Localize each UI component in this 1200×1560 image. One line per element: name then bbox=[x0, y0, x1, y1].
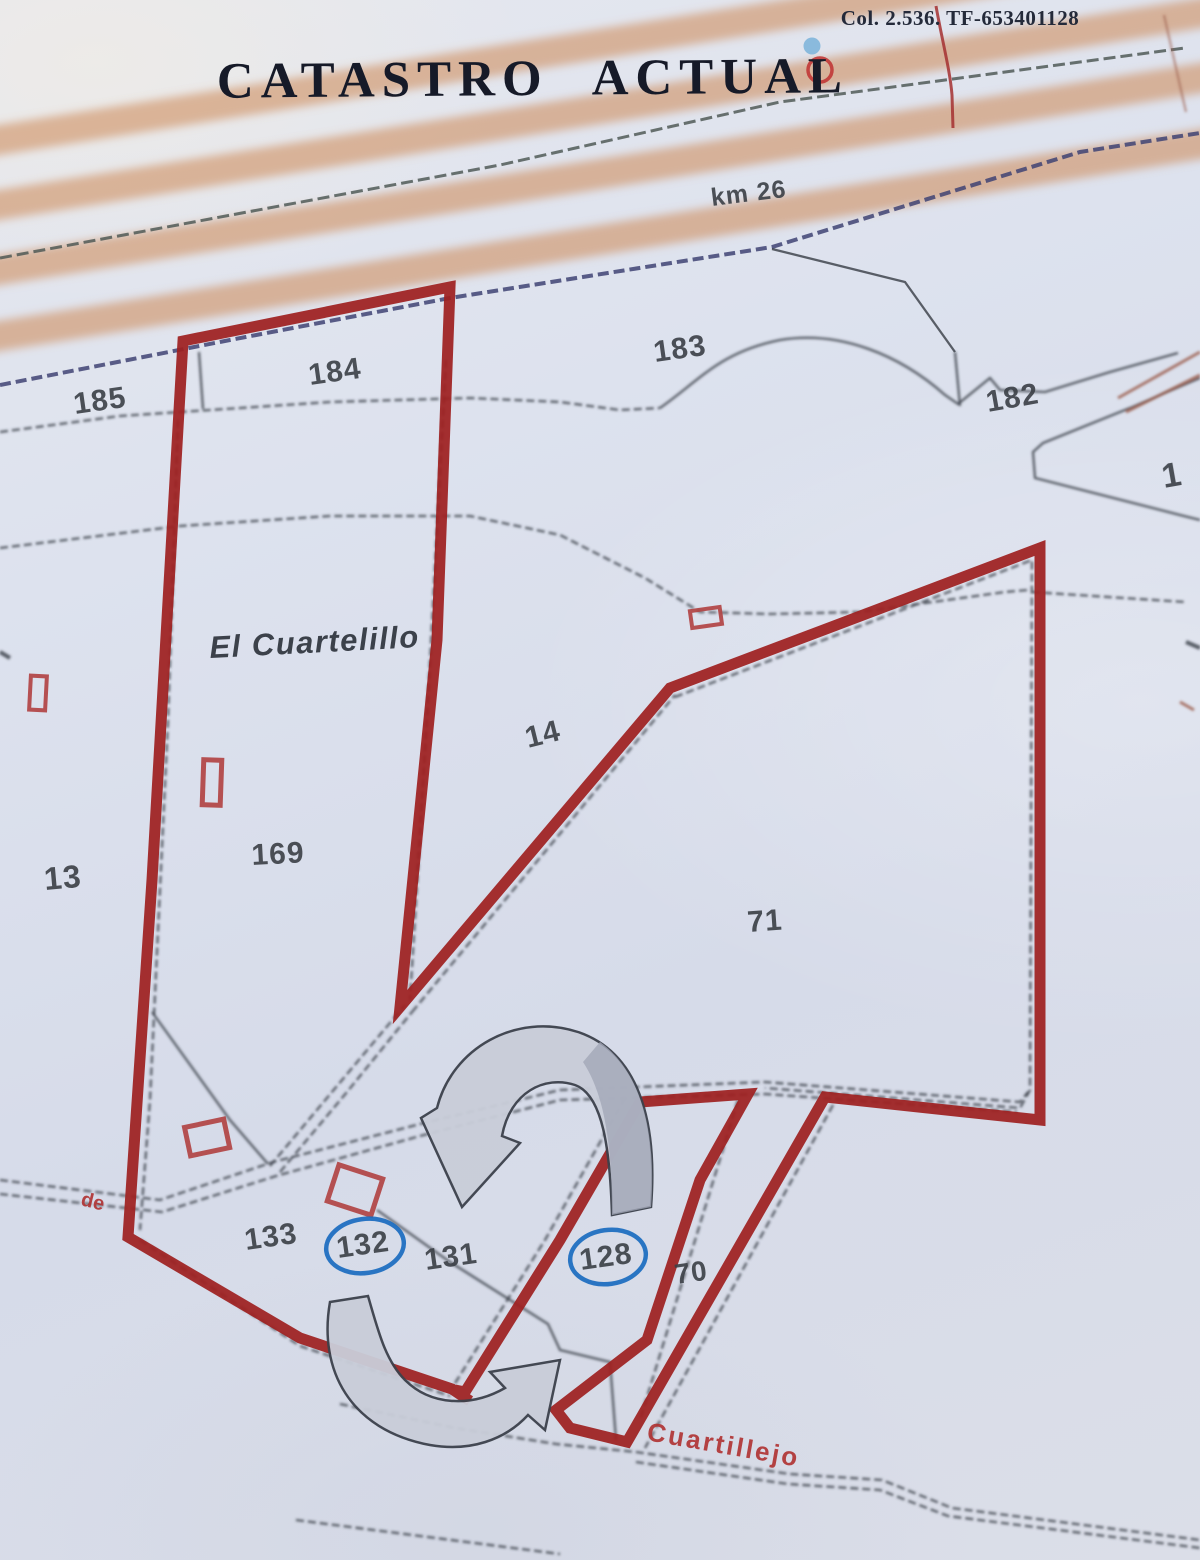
building-outline bbox=[185, 1119, 230, 1156]
parcel-label-182: 182 bbox=[983, 377, 1041, 419]
map-canvas: CATASTRO ACTUAL Col. 2.536. TF-653401128… bbox=[0, 0, 1200, 1560]
parcel-label-13: 13 bbox=[42, 858, 83, 897]
region-name-label: El Cuartelillo bbox=[209, 619, 421, 665]
rotate-arrow-bottom bbox=[328, 1296, 560, 1447]
parcel-label-128: 128 bbox=[577, 1237, 634, 1277]
parcel-label-133: 133 bbox=[242, 1217, 299, 1257]
parcel-label-131: 131 bbox=[422, 1237, 479, 1277]
scanned-cadastral-map-page: CATASTRO ACTUAL Col. 2.536. TF-653401128… bbox=[0, 0, 1200, 1560]
building-outline bbox=[690, 607, 722, 628]
building-outline bbox=[29, 676, 47, 711]
parcel-line-branch bbox=[772, 249, 955, 352]
reference-number: Col. 2.536. TF-653401128 bbox=[841, 6, 1080, 30]
rotate-arrow-top bbox=[421, 1026, 652, 1215]
page-title: CATASTRO ACTUAL bbox=[217, 48, 850, 110]
parcel-label-169: 169 bbox=[251, 836, 306, 872]
building-outline bbox=[202, 760, 222, 806]
parcel-label-1: 1 bbox=[1159, 455, 1185, 496]
parcel-label-70: 70 bbox=[673, 1255, 710, 1290]
building-blue-roof bbox=[327, 1165, 382, 1215]
parcel-label-132: 132 bbox=[334, 1225, 391, 1265]
parcel-label-183: 183 bbox=[651, 329, 708, 369]
parcel-label-184: 184 bbox=[306, 352, 363, 392]
parcel-label-14: 14 bbox=[522, 714, 564, 755]
path-label-de: de bbox=[79, 1189, 107, 1216]
parcel-label-71: 71 bbox=[746, 904, 784, 939]
